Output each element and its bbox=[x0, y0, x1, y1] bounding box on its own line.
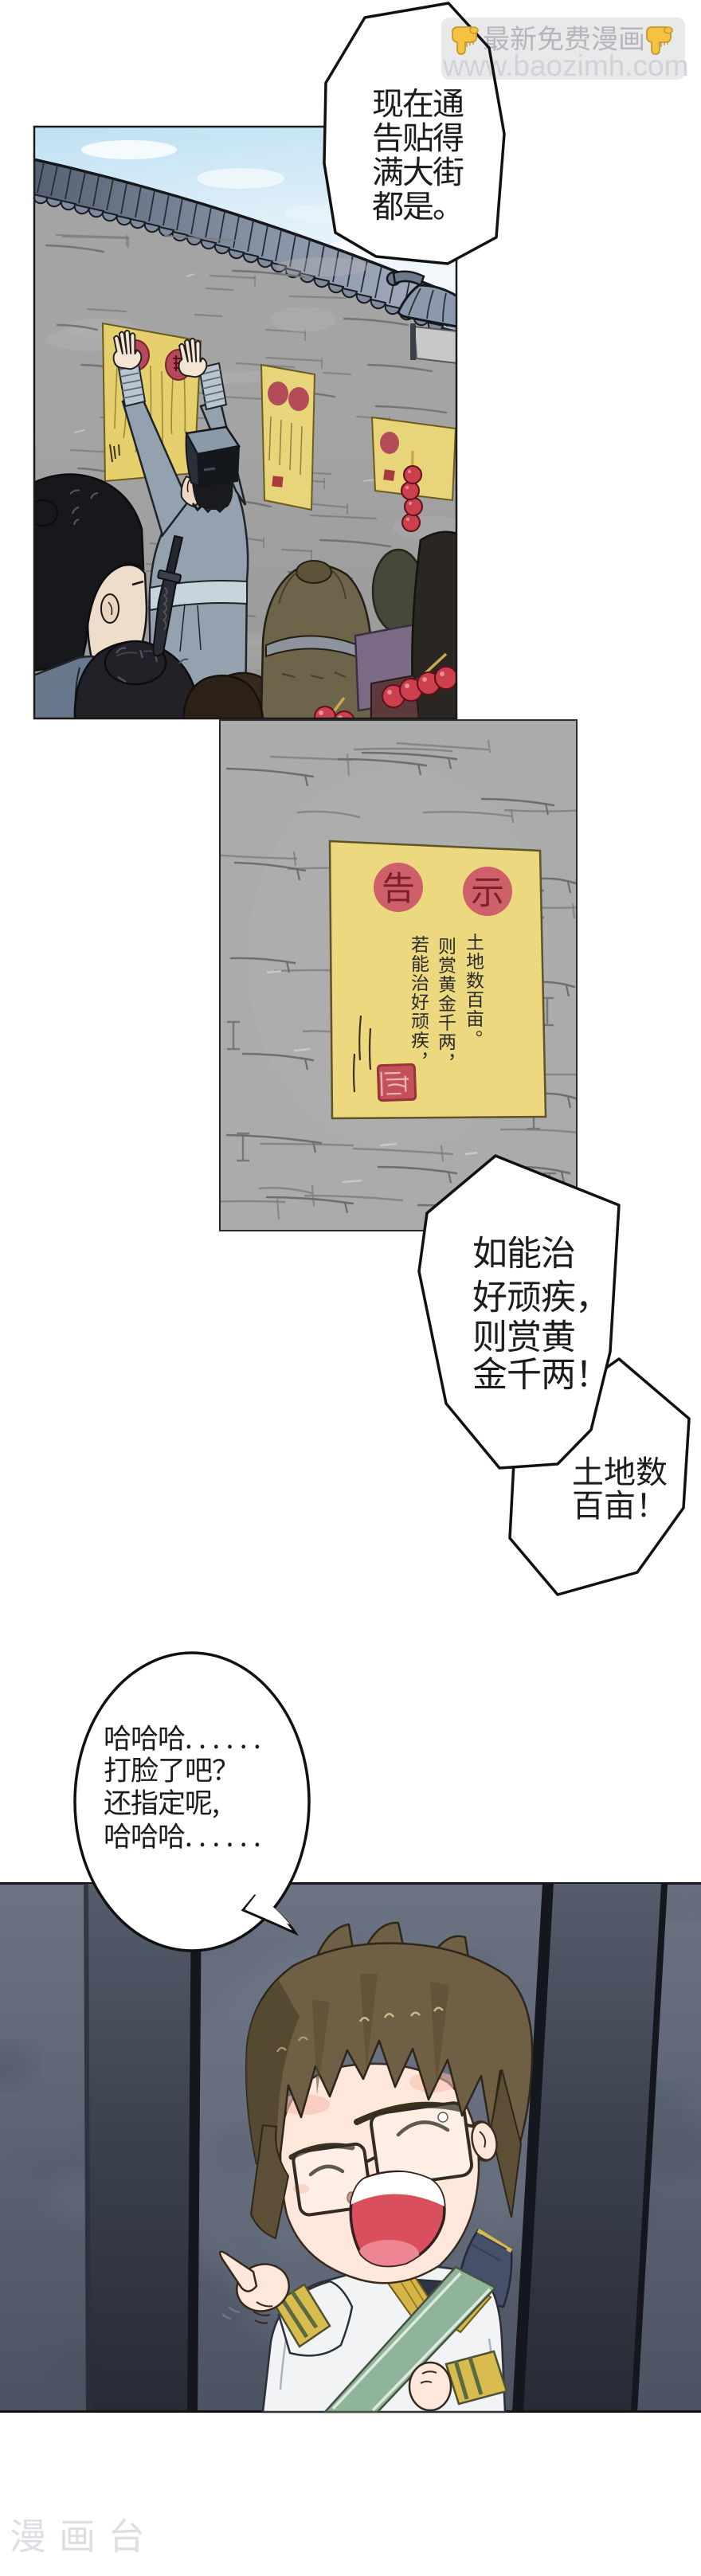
svg-text:www.baozimh.com: www.baozimh.com bbox=[442, 49, 688, 82]
